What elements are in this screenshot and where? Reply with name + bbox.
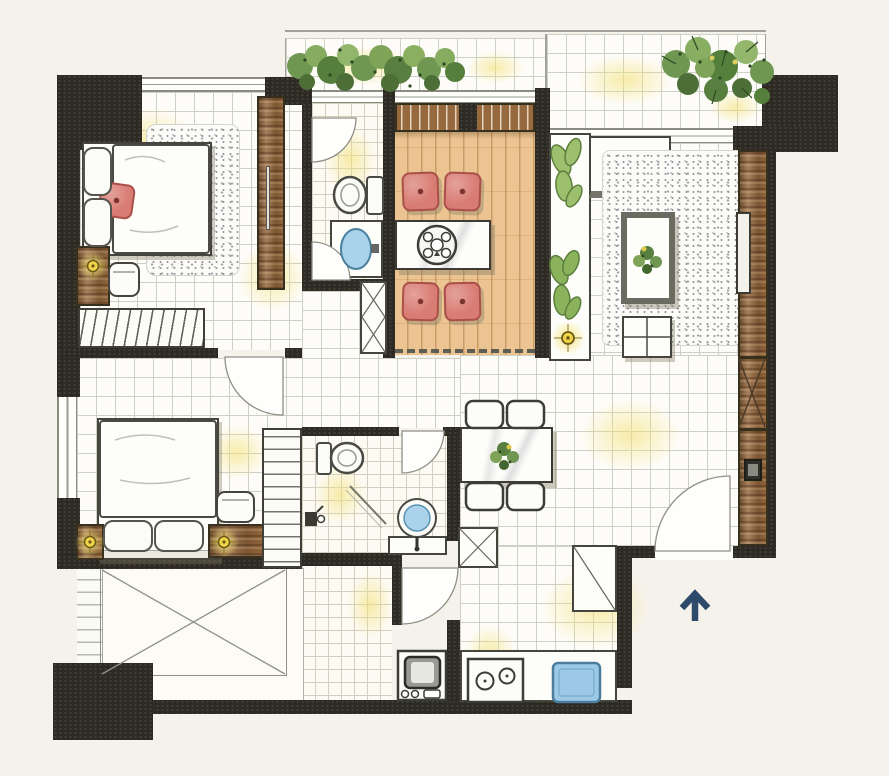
floor-cushion	[401, 171, 439, 211]
entry-threshold	[653, 546, 733, 560]
wall-bottom-left-block	[53, 663, 153, 740]
front-balcony-floor	[285, 38, 547, 90]
tv-cabinet-divider	[738, 356, 768, 359]
wall-bottom	[140, 700, 632, 714]
living-ottoman	[622, 316, 672, 358]
tatami-tea-table	[395, 220, 491, 270]
bedroom2-nightstand-left	[76, 524, 104, 560]
bedroom2-headboard	[99, 550, 217, 558]
tatami-closet-shadow	[395, 132, 535, 139]
bedroom1-nightstand	[76, 246, 110, 306]
living-coffee-table	[621, 212, 675, 304]
entry-arrow	[682, 594, 708, 621]
television	[736, 212, 751, 294]
kitchen-counter	[460, 650, 617, 702]
floor-cushion	[401, 282, 439, 322]
tatami-window	[395, 90, 535, 104]
wall-bathroom2-top	[302, 427, 399, 436]
tv-cabinet	[738, 150, 768, 546]
bedroom1-closet	[78, 308, 205, 348]
tv-cabinet-divider	[738, 428, 768, 431]
dining-table	[460, 427, 553, 483]
floor-cushion	[443, 171, 481, 211]
wall-entry-left-jamb	[632, 546, 655, 558]
bedroom2-nightstand-right	[208, 524, 264, 558]
floor-plan-canvas	[0, 0, 889, 776]
bedroom1-red-pillow	[97, 181, 137, 221]
washer-appliance	[398, 651, 446, 700]
wall-bedroom-divider-a	[57, 348, 218, 358]
bedroom2-duvet	[99, 420, 217, 518]
bedroom1-wardrobe	[257, 96, 285, 290]
wall-bathroom2-top-jamb	[443, 427, 460, 436]
bedroom2-window	[57, 395, 78, 498]
wall-kitchen-divider	[447, 620, 460, 702]
bedroom2-wardrobe	[262, 428, 302, 568]
tatami-sliding-partition	[395, 349, 535, 353]
wall-top-right-block	[762, 75, 838, 130]
wall-top-right-band	[733, 126, 838, 152]
hall-floor	[302, 358, 460, 428]
shoe-cabinet-knob-inner	[748, 464, 758, 476]
floor-cushion	[443, 282, 481, 322]
bedroom1-top-window	[140, 77, 267, 92]
wall-bathroom1-left	[302, 103, 312, 290]
bathroom1-window	[312, 90, 383, 104]
bathroom2-vanity	[388, 536, 447, 555]
service-shaft-entry	[572, 545, 617, 612]
wall-bedroom-divider-b	[285, 348, 302, 358]
wall-dining-left	[447, 427, 460, 541]
wall-laundry	[392, 553, 402, 625]
wall-tatami-right	[535, 100, 550, 358]
wall-bathroom2-bottom	[302, 553, 394, 566]
service-shaft-dining	[458, 527, 498, 568]
wall-entry-right	[733, 546, 776, 558]
laundry-floor	[302, 565, 392, 702]
utility-x-box	[100, 568, 287, 676]
tatami-closet-divider	[459, 103, 477, 132]
wardrobe-handle	[266, 166, 270, 230]
wall-kitchen-east	[617, 546, 632, 688]
living-balcony-floor	[545, 34, 766, 130]
door-laundry	[402, 568, 458, 624]
living-side-console	[549, 133, 591, 361]
bathroom1-vanity	[330, 220, 383, 278]
service-shaft-corridor	[360, 281, 387, 354]
